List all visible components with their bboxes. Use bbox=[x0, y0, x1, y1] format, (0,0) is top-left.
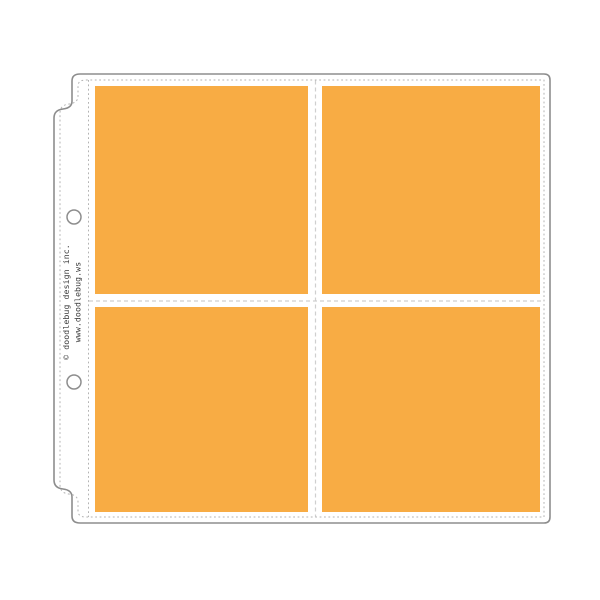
binder-hole-top bbox=[67, 210, 81, 224]
pocket-top-right bbox=[322, 86, 540, 294]
branding-copyright-text: © doodlebug design inc. bbox=[61, 244, 71, 360]
pocket-top-left bbox=[95, 86, 308, 294]
branding-url-text: www.doodlebug.ws bbox=[73, 262, 83, 342]
pocket-bottom-right bbox=[322, 307, 540, 512]
page-protector-photo: © doodlebug design inc. www.doodlebug.ws bbox=[0, 0, 600, 600]
product-photo-stage: © doodlebug design inc. www.doodlebug.ws bbox=[0, 0, 600, 600]
pocket-bottom-left bbox=[95, 307, 308, 512]
binder-hole-bottom bbox=[67, 375, 81, 389]
